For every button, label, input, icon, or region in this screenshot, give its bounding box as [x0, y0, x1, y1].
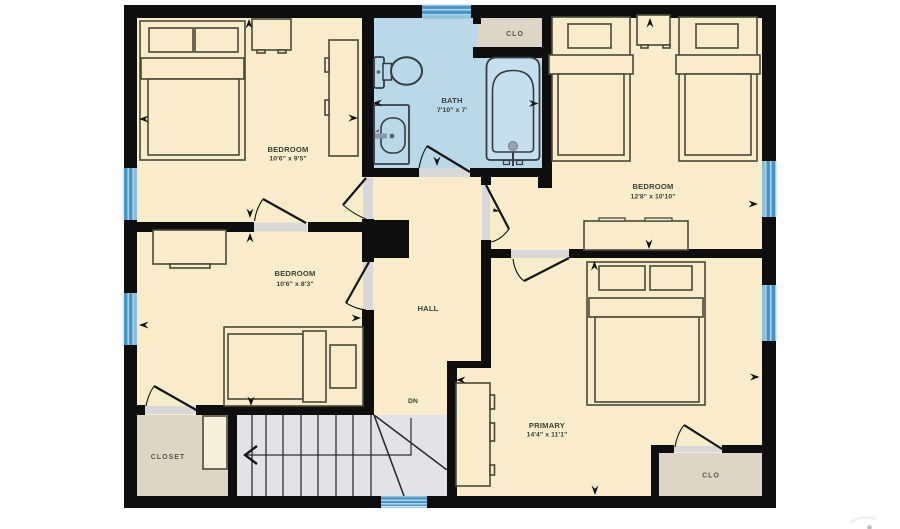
- svg-text:BATH: BATH: [441, 96, 462, 105]
- svg-text:BEDROOM: BEDROOM: [632, 182, 673, 191]
- svg-text:12'8" x 10'10": 12'8" x 10'10": [630, 194, 675, 201]
- svg-text:DN: DN: [408, 398, 418, 405]
- svg-text:10'6" x 9'5": 10'6" x 9'5": [269, 156, 306, 163]
- svg-text:BEDROOM: BEDROOM: [274, 269, 315, 278]
- svg-text:CLOSET: CLOSET: [151, 454, 185, 461]
- svg-text:14'4" x 11'1": 14'4" x 11'1": [527, 432, 568, 439]
- svg-text:CLO: CLO: [506, 31, 524, 38]
- svg-text:CLO: CLO: [702, 473, 720, 480]
- svg-text:PRIMARY: PRIMARY: [529, 421, 565, 430]
- svg-text:HALL: HALL: [417, 304, 438, 313]
- svg-text:10'6" x 8'3": 10'6" x 8'3": [276, 281, 313, 288]
- svg-text:7'10" x 7': 7'10" x 7': [437, 107, 467, 114]
- svg-text:BEDROOM: BEDROOM: [267, 145, 308, 154]
